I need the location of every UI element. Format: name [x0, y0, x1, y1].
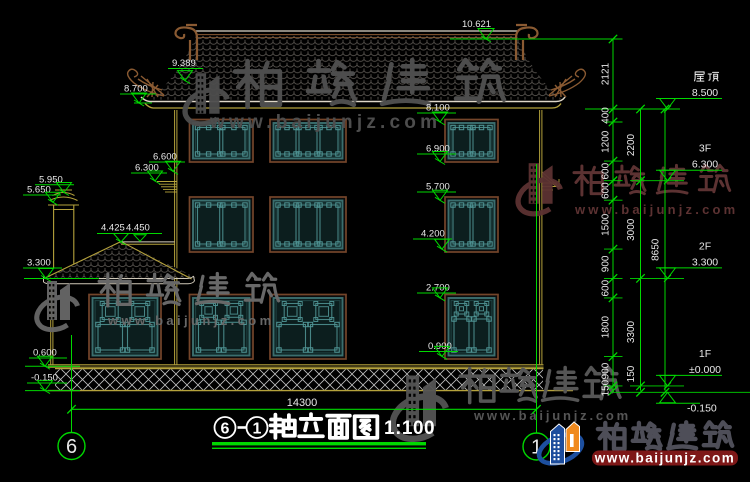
svg-text:www.baijunjz.com: www.baijunjz.com [107, 313, 275, 328]
svg-text:900: 900 [601, 362, 612, 379]
svg-text:-0.150: -0.150 [31, 373, 58, 384]
svg-text:8650: 8650 [651, 238, 662, 261]
svg-text:4.425: 4.425 [101, 223, 125, 234]
svg-text:1800: 1800 [601, 316, 612, 339]
svg-text:600: 600 [601, 182, 612, 199]
svg-text:1200: 1200 [601, 130, 612, 153]
svg-text:3.300: 3.300 [27, 258, 51, 269]
svg-text:0.600: 0.600 [33, 348, 57, 359]
svg-text:600: 600 [601, 279, 612, 296]
svg-text:400: 400 [601, 107, 612, 124]
svg-text:1: 1 [253, 421, 262, 438]
svg-text:3300: 3300 [626, 320, 637, 343]
svg-text:9.389: 9.389 [172, 58, 196, 69]
svg-text:150: 150 [626, 365, 637, 382]
svg-text:3F: 3F [699, 143, 711, 155]
svg-text:www.baijunjz.com: www.baijunjz.com [209, 112, 441, 133]
svg-text:www.baijunjz.com: www.baijunjz.com [473, 408, 631, 423]
svg-text:2121: 2121 [601, 62, 612, 85]
svg-text:6.300: 6.300 [135, 163, 159, 174]
svg-text:±0.000: ±0.000 [689, 364, 721, 376]
svg-text:6: 6 [221, 421, 230, 438]
svg-text:-0.150: -0.150 [687, 402, 717, 414]
svg-text:1500: 1500 [601, 213, 612, 236]
svg-text:900: 900 [601, 255, 612, 272]
svg-text:6.300: 6.300 [692, 159, 718, 171]
svg-text:8.500: 8.500 [692, 87, 718, 99]
svg-text:2200: 2200 [626, 133, 637, 156]
svg-text:6: 6 [66, 436, 77, 458]
svg-text:1:100: 1:100 [384, 418, 435, 439]
svg-text:14300: 14300 [287, 397, 318, 409]
svg-text:150: 150 [601, 379, 612, 396]
svg-text:www.baijunjz.com: www.baijunjz.com [594, 451, 736, 466]
svg-text:3.300: 3.300 [692, 256, 718, 268]
svg-text:2F: 2F [699, 240, 711, 252]
svg-text:www.baijunjz.com: www.baijunjz.com [574, 202, 738, 217]
svg-text:3000: 3000 [626, 218, 637, 241]
svg-text:5.700: 5.700 [426, 182, 450, 193]
svg-text:1F: 1F [699, 348, 711, 360]
svg-text:4.450: 4.450 [126, 223, 150, 234]
svg-text:4.200: 4.200 [421, 229, 445, 240]
svg-text:600: 600 [601, 162, 612, 179]
